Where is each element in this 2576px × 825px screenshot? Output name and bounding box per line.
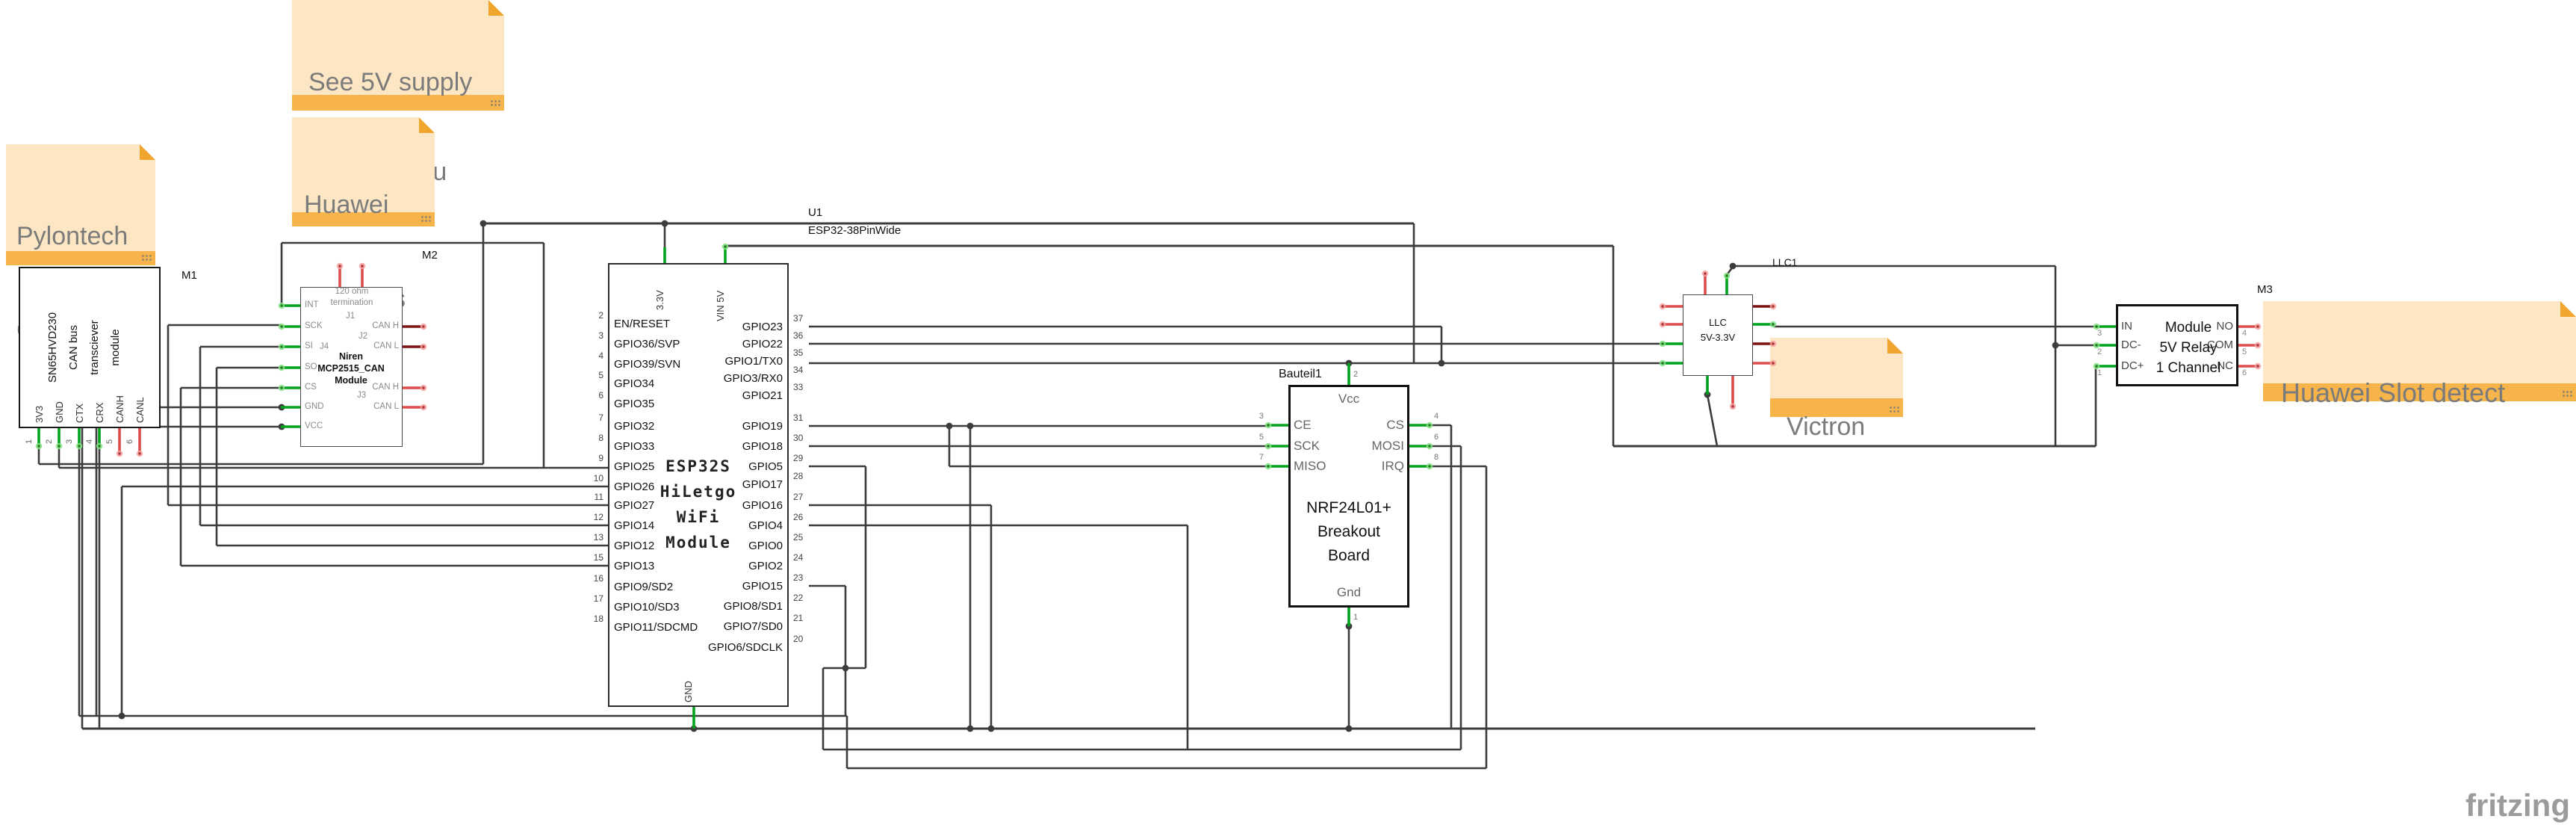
m2-jumper-label: J4	[320, 342, 329, 351]
nrf-pin-number: 2	[1353, 370, 1358, 379]
pin-tip-icon	[118, 452, 120, 454]
u1-pin-label: GPIO0	[663, 540, 783, 552]
pin-tip-icon	[280, 386, 282, 389]
pin-tip-icon	[138, 452, 140, 454]
fritzing-schematic-canvas: See 5V supply mod in docu Pylontech CAN …	[0, 0, 2576, 825]
pin-tip-icon	[1725, 274, 1728, 276]
u1-pin-label: GPIO21	[663, 389, 783, 402]
pin-tip-icon	[724, 245, 726, 247]
pin-tip-icon	[280, 325, 282, 327]
junction-dot	[1438, 360, 1445, 367]
u1-pin-label: GPIO6/SDCLK	[663, 641, 783, 654]
m2-jumper-label: J1	[346, 312, 355, 321]
u1-pin-label: GPIO23	[663, 321, 783, 333]
pin-tip-icon	[1731, 405, 1734, 407]
junction-dot	[988, 726, 995, 732]
u1-part-label[interactable]: ESP32-38PinWide	[808, 224, 901, 237]
pin-tip-icon	[1428, 424, 1430, 426]
u1-pin-label: GPIO1/TX0	[663, 355, 783, 368]
m3-pin-number: 1	[2097, 368, 2102, 377]
nrf-pin-number: 8	[1434, 453, 1438, 462]
pin-tip-icon	[361, 265, 363, 267]
pin-tip-icon	[1428, 445, 1430, 447]
m1-pin-number: 5	[105, 427, 114, 444]
m2-pin-label: GND	[305, 402, 324, 411]
u1-pin-label: GPIO25	[614, 460, 654, 473]
u1-pin-number: 21	[793, 613, 803, 623]
m1-ref-label[interactable]: M1	[181, 269, 197, 282]
u1-pin-number: 7	[575, 412, 603, 423]
junction-dot	[1730, 263, 1737, 270]
u1-pin-number: 20	[793, 634, 803, 644]
u1-pin-number: 24	[793, 552, 803, 563]
m3-pin-number: 2	[2097, 347, 2102, 356]
m2-jumper-label: J3	[357, 391, 366, 400]
u1-pin-number: 5	[575, 370, 603, 380]
m2-pin-label: CAN L	[347, 342, 399, 350]
u1-pin-number: 33	[793, 382, 803, 392]
fritzing-logo: fritzing	[2465, 788, 2570, 824]
u1-pin-number: 8	[575, 433, 603, 443]
pin-tip-icon	[1772, 323, 1774, 325]
llc-ref-label[interactable]: LLC1	[1772, 256, 1797, 268]
m1-pin-number: 2	[45, 427, 54, 444]
u1-pin-label: GPIO8/SD1	[663, 600, 783, 613]
nrf-pin-number: 3	[1244, 412, 1264, 421]
nrf-pin-label: MISO	[1294, 459, 1326, 474]
u1-pin-label: GPIO26	[614, 481, 654, 493]
nrf-pin-number: 6	[1434, 433, 1438, 442]
u1-pin-number: 31	[793, 412, 803, 423]
pin-tip-icon	[2095, 344, 2097, 346]
m3-ref-label[interactable]: M3	[2257, 283, 2273, 296]
m1-pin-label: 3V3	[34, 368, 45, 423]
m2-termination-label: termination	[319, 298, 385, 307]
u1-pin-number: 29	[793, 453, 803, 463]
m2-pin-label: CAN L	[347, 402, 399, 411]
m2-pin-label: CAN H	[347, 383, 399, 392]
m1-pin-number: 6	[125, 427, 134, 444]
pin-tip-icon	[2256, 365, 2259, 367]
m1-pin-number: 3	[65, 427, 74, 444]
m3-pin-number: 3	[2097, 329, 2102, 338]
m1-pin-label: GND	[54, 368, 65, 423]
pin-tip-icon	[1661, 342, 1663, 344]
u1-pin-label: GPIO12	[614, 540, 654, 552]
pin-tip-icon	[1267, 445, 1269, 447]
u1-pin-number: 6	[575, 390, 603, 401]
u1-pin-number: 4	[575, 350, 603, 361]
m2-pin-label: SO	[305, 362, 317, 371]
nrf-pin-number: 5	[1244, 433, 1264, 442]
nrf-pin-label: IRQ	[1337, 459, 1404, 474]
pin-tip-icon	[1772, 362, 1774, 364]
pin-tip-icon	[1772, 342, 1774, 344]
u1-pin-number: 12	[575, 512, 603, 522]
u1-pin-label: GPIO13	[614, 560, 654, 572]
nrf-pin-label: Vcc	[1322, 392, 1376, 407]
u1-pin-label: GPIO7/SD0	[663, 620, 783, 633]
nrf-center-text: Breakout	[1291, 523, 1406, 541]
pin-tip-icon	[1772, 305, 1774, 307]
junction-dot	[480, 220, 487, 227]
m1-pin-label: CANL	[134, 368, 146, 423]
m1-pin-number: 1	[25, 427, 34, 444]
llc-text: 5V-3.3V	[1685, 332, 1751, 343]
nrf-pin-number: 7	[1244, 453, 1264, 462]
pin-tip-icon	[58, 445, 60, 447]
pin-tip-icon	[1428, 465, 1430, 467]
junction-dot	[967, 423, 974, 430]
u1-pin-number: 16	[575, 573, 603, 584]
u1-pin-number: 37	[793, 313, 803, 324]
u1-pin-label: EN/RESET	[614, 318, 670, 330]
m1-pin-label: CANH	[114, 368, 125, 423]
u1-pin-number: 11	[575, 492, 603, 502]
u1-pin-label: GPIO16	[663, 499, 783, 512]
m2-pin-label: CAN H	[347, 321, 399, 330]
u1-top-pin-label: VIN 5V	[715, 268, 726, 321]
nrf-pin-number: 1	[1353, 613, 1358, 622]
u1-pin-label: GPIO32	[614, 420, 654, 433]
u1-pin-label: GPIO17	[663, 478, 783, 491]
u1-pin-number: 3	[575, 330, 603, 341]
u1-pin-label: GPIO34	[614, 377, 654, 390]
pin-tip-icon	[2095, 365, 2097, 367]
junction-dot	[946, 423, 953, 430]
u1-pin-label: GPIO4	[663, 519, 783, 532]
pin-tip-icon	[78, 445, 80, 447]
m2-pin-label: CS	[305, 383, 317, 392]
nrf-center-text: Board	[1291, 547, 1406, 565]
nrf-pin-label: CE	[1294, 418, 1312, 433]
u1-pin-number: 22	[793, 593, 803, 603]
m1-pin-number: 4	[85, 427, 94, 444]
nrf-pin-label: Gnd	[1322, 585, 1376, 600]
pin-tip-icon	[98, 445, 100, 447]
pin-tip-icon	[1704, 272, 1706, 274]
u1-pin-label: GPIO33	[614, 440, 654, 453]
u1-pin-number: 36	[793, 330, 803, 341]
junction-dot	[119, 713, 125, 720]
m3-pin-label: IN	[2121, 320, 2132, 333]
u1-bottom-pin-label: GND	[683, 673, 694, 702]
junction-dot	[967, 726, 974, 732]
nrf-ref-label[interactable]: Bauteil1	[1279, 368, 1322, 381]
u1-pin-number: 34	[793, 365, 803, 375]
m2-name-text: Niren	[302, 351, 400, 362]
u1-pin-number: 13	[575, 532, 603, 543]
u1-pin-number: 23	[793, 572, 803, 583]
u1-pin-label: GPIO14	[614, 519, 654, 532]
pin-tip-icon	[338, 265, 341, 267]
u1-pin-number: 18	[575, 614, 603, 624]
u1-pin-number: 25	[793, 532, 803, 543]
pin-tip-icon	[1661, 305, 1663, 307]
u1-pin-number: 17	[575, 593, 603, 604]
u1-pin-label: GPIO27	[614, 499, 654, 512]
pin-tip-icon	[422, 386, 424, 389]
nrf-pin-label: CS	[1337, 418, 1404, 433]
m3-pin-label: DC-	[2121, 339, 2141, 351]
m3-pin-number: 4	[2242, 329, 2247, 338]
junction-dot	[842, 665, 849, 672]
m3-center-text: 1 Channel	[2144, 360, 2233, 377]
u1-pin-label: GPIO5	[663, 460, 783, 473]
m2-pin-label: INT	[305, 300, 319, 309]
u1-pin-label: GPIO15	[663, 580, 783, 593]
pin-tip-icon	[1661, 362, 1663, 364]
u1-pin-label: GPIO3/RX0	[663, 372, 783, 385]
m3-center-text: 5V Relay	[2144, 340, 2233, 356]
pin-tip-icon	[422, 345, 424, 347]
nrf-center-text: NRF24L01+	[1291, 499, 1406, 517]
u1-pin-label: GPIO19	[663, 420, 783, 433]
m2-pin-label: SCK	[305, 321, 323, 330]
pin-tip-icon	[422, 325, 424, 327]
pin-tip-icon	[280, 366, 282, 368]
nrf-pin-number: 4	[1434, 412, 1438, 421]
junction-dot	[662, 220, 668, 227]
u1-ref-label[interactable]: U1	[808, 206, 822, 219]
u1-pin-number: 30	[793, 433, 803, 443]
pin-tip-icon	[1661, 323, 1663, 325]
llc-text: LLC	[1685, 317, 1751, 328]
u1-pin-label: GPIO2	[663, 560, 783, 572]
m2-pin-label: SI	[305, 342, 313, 350]
pin-tip-icon	[422, 406, 424, 408]
m2-termination-label: 120 ohm	[326, 287, 377, 296]
junction-dot	[2052, 342, 2059, 349]
m3-pin-number: 6	[2242, 368, 2247, 377]
u1-pin-number: 10	[575, 473, 603, 483]
u1-pin-number: 27	[793, 492, 803, 502]
m1-pin-label: CTX	[74, 368, 85, 423]
m3-pin-number: 5	[2242, 347, 2247, 356]
wire[interactable]	[1707, 395, 1717, 446]
m2-ref-label[interactable]: M2	[422, 249, 438, 262]
pin-tip-icon	[2256, 325, 2259, 327]
m2-pin-label: VCC	[305, 421, 323, 430]
u1-pin-label: GPIO22	[663, 338, 783, 350]
pin-tip-icon	[2095, 325, 2097, 327]
u1-pin-label: GPIO35	[614, 398, 654, 410]
u1-top-pin-label: 3.3V	[654, 267, 665, 310]
u1-pin-number: 9	[575, 453, 603, 463]
m3-center-text: Module	[2144, 320, 2233, 336]
m3-pin-label: DC+	[2121, 359, 2144, 372]
m2-jumper-label: J2	[359, 332, 367, 341]
u1-pin-number: 2	[575, 310, 603, 321]
nrf-pin-label: MOSI	[1337, 439, 1404, 454]
u1-pin-number: 26	[793, 512, 803, 522]
junction-dot	[1346, 726, 1353, 732]
nrf-pin-label: SCK	[1294, 439, 1320, 454]
pin-tip-icon	[280, 304, 282, 306]
m1-pin-label: CRX	[94, 368, 105, 423]
pin-tip-icon	[1267, 424, 1269, 426]
pin-tip-icon	[2256, 344, 2259, 346]
u1-pin-number: 28	[793, 471, 803, 481]
pin-tip-icon	[37, 445, 40, 447]
u1-pin-label: GPIO18	[663, 440, 783, 453]
u1-pin-number: 15	[575, 552, 603, 563]
pin-tip-icon	[280, 345, 282, 347]
u1-pin-number: 35	[793, 347, 803, 358]
pin-tip-icon	[1267, 465, 1269, 467]
